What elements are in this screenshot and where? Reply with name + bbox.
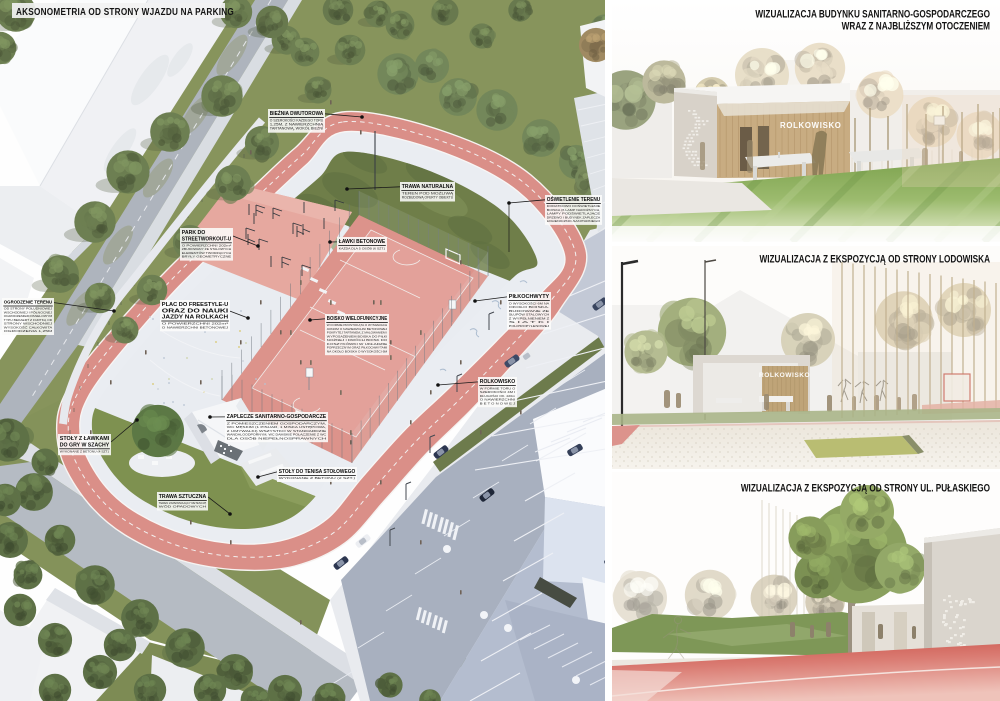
svg-text:OGRODZENIE TERENU: OGRODZENIE TERENU [4, 300, 53, 305]
svg-text:WIZUALIZACJA BUDYNKU SANITARNO: WIZUALIZACJA BUDYNKU SANITARNO-GOSPODARC… [755, 8, 990, 21]
svg-text:POLIPROPYLENOWEJ: POLIPROPYLENOWEJ [509, 324, 550, 328]
svg-text:TRAWA NATURALNA: TRAWA NATURALNA [402, 184, 454, 190]
svg-text:KAŻDA DLA 5 OSÓB (6 SZT.): KAŻDA DLA 5 OSÓB (6 SZT.) [339, 245, 385, 250]
svg-text:AKSONOMETRIA OD STRONY WJAZDU: AKSONOMETRIA OD STRONY WJAZDU NA PARKING [16, 6, 234, 17]
svg-text:TEREN ZAPEWNIAJĄCY RETENCJĘ: TEREN ZAPEWNIAJĄCY RETENCJĘ [159, 501, 207, 505]
svg-text:BOISKO WIELOFUNKCYJNE: BOISKO WIELOFUNKCYJNE [327, 316, 388, 322]
svg-text:PARK DO: PARK DO [182, 230, 206, 236]
svg-text:DO GRY W SZACHY: DO GRY W SZACHY [60, 442, 110, 448]
svg-text:WIZUALIZACJA Z EKSPOZYCJĄ OD S: WIZUALIZACJA Z EKSPOZYCJĄ OD STRONY LODO… [760, 253, 990, 266]
svg-text:ROZBUDOWĄ OFERTY OBIEKTU: ROZBUDOWĄ OFERTY OBIEKTU [402, 196, 454, 200]
svg-text:ROLKOWISKO: ROLKOWISKO [780, 121, 842, 130]
svg-text:ROLKOWISKO: ROLKOWISKO [759, 372, 810, 379]
svg-text:JAZDY NA ROLKACH: JAZDY NA ROLKACH [162, 315, 229, 321]
svg-text:WRAZ Z NAJBLIŻSZYM OTOCZENIEM: WRAZ Z NAJBLIŻSZYM OTOCZENIEM [842, 20, 990, 33]
svg-text:STOŁY Z ŁAWKAMI: STOŁY Z ŁAWKAMI [60, 436, 110, 442]
svg-text:TRAWA SZTUCZNA: TRAWA SZTUCZNA [159, 494, 207, 500]
svg-text:STREETWORKOUT-U: STREETWORKOUT-U [182, 236, 232, 242]
svg-text:BRYŁY GEOMETRYCZNE: BRYŁY GEOMETRYCZNE [182, 255, 231, 259]
svg-text:PIŁKOCHWYTY: PIŁKOCHWYTY [509, 294, 550, 300]
svg-text:OGRODZENIA 1,25M: OGRODZENIA 1,25M [4, 329, 53, 333]
svg-text:ŁAWKI BETONOWE: ŁAWKI BETONOWE [339, 239, 386, 245]
svg-text:WYKONANE Z BETONU: WYKONANE Z BETONU (2 SZT.) [279, 476, 356, 480]
svg-text:HIGIENICZNO-SANITARNEGO: HIGIENICZNO-SANITARNEGO [547, 219, 601, 223]
svg-text:WIZUALIZACJA Z EKSPOZYCJĄ OD S: WIZUALIZACJA Z EKSPOZYCJĄ OD STRONY UL. … [741, 482, 990, 495]
svg-text:B E T O N O W E J: B E T O N O W E J [480, 401, 516, 405]
svg-text:NA OKOŁO BOISKA O WYSOKOŚCI 6M: NA OKOŁO BOISKA O WYSOKOŚCI 6M [327, 348, 388, 353]
svg-text:ROLKOWISKO: ROLKOWISKO [480, 379, 515, 385]
svg-text:TARTANOWĄ, WOKÓŁ BIEŻNI: TARTANOWĄ, WOKÓŁ BIEŻNI [270, 126, 323, 131]
svg-text:ORAZ DO NAUKI: ORAZ DO NAUKI [162, 308, 229, 314]
svg-text:STOŁY DO TENISA STOŁOWEGO: STOŁY DO TENISA STOŁOWEGO [279, 469, 355, 475]
svg-text:WYKONANE Z BETONU (4 SZT.): WYKONANE Z BETONU (4 SZT.) [60, 449, 110, 453]
svg-text:BIEŻNIA DWUTOROWA: BIEŻNIA DWUTOROWA [270, 110, 324, 117]
svg-text:DLA OSÓB NIEPE: DLA OSÓB NIEPEŁNOSPRAWNYCH [227, 435, 326, 440]
svg-text:O NAWIERZCHNI BETONOWEJ: O NAWIERZCHNI BETONOWEJ [162, 325, 229, 329]
svg-text:OŚWIETLENIE TERENU: OŚWIETLENIE TERENU [547, 196, 601, 203]
svg-text:ZAPLECZE SANITARNO-GOSPODARCZE: ZAPLECZE SANITARNO-GOSPODARCZE [227, 414, 327, 420]
svg-text:PLAC DO FREESTYLE-U: PLAC DO FREESTYLE-U [162, 302, 229, 308]
